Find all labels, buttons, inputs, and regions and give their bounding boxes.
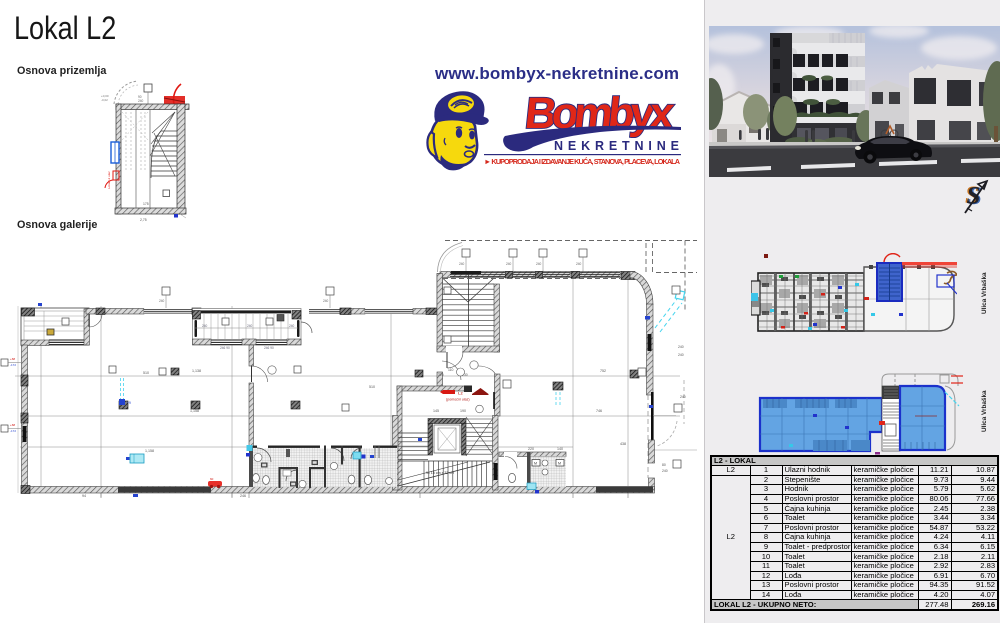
svg-text:60: 60 bbox=[210, 477, 214, 481]
svg-text:240: 240 bbox=[506, 262, 512, 266]
svg-text:M: M bbox=[534, 462, 537, 466]
svg-text:240: 240 bbox=[459, 262, 465, 266]
svg-text:752: 752 bbox=[600, 369, 606, 373]
svg-text:240: 240 bbox=[576, 262, 582, 266]
svg-text:www.bombyx-nekretnine.com: www.bombyx-nekretnine.com bbox=[434, 64, 679, 83]
svg-text:240: 240 bbox=[662, 469, 668, 473]
svg-text:438: 438 bbox=[620, 442, 626, 446]
svg-text:190: 190 bbox=[460, 409, 466, 413]
svg-text:240: 240 bbox=[678, 353, 684, 357]
svg-text:246: 246 bbox=[240, 494, 246, 498]
svg-text:240: 240 bbox=[323, 299, 329, 303]
svg-text:+9: +9 bbox=[127, 401, 131, 405]
svg-text:240: 240 bbox=[289, 324, 295, 328]
svg-text:240: 240 bbox=[247, 324, 253, 328]
svg-text:220: 220 bbox=[528, 447, 534, 451]
svg-text:+68: +68 bbox=[10, 423, 15, 427]
svg-text:-0,02: -0,02 bbox=[101, 98, 108, 102]
svg-text:140: 140 bbox=[557, 447, 563, 451]
svg-text:145: 145 bbox=[433, 409, 439, 413]
svg-text:► KUPOPRODAJA I IZDAVANJE KUĆA: ► KUPOPRODAJA I IZDAVANJE KUĆA, STANOVA,… bbox=[484, 157, 681, 166]
svg-text:175: 175 bbox=[143, 202, 149, 206]
svg-text:(pomoćni ulaz): (pomoćni ulaz) bbox=[446, 398, 470, 402]
svg-text:-172: -172 bbox=[10, 429, 16, 433]
svg-text:246 90: 246 90 bbox=[264, 346, 274, 350]
svg-text:510: 510 bbox=[143, 371, 149, 375]
svg-text:94: 94 bbox=[82, 494, 86, 498]
svg-text:510: 510 bbox=[369, 385, 375, 389]
svg-text:1,138: 1,138 bbox=[192, 369, 201, 373]
svg-text:240: 240 bbox=[678, 345, 684, 349]
svg-text:240: 240 bbox=[536, 262, 542, 266]
svg-text:2,75: 2,75 bbox=[140, 218, 147, 222]
svg-text:1,158: 1,158 bbox=[190, 409, 199, 413]
svg-text:746: 746 bbox=[596, 409, 602, 413]
svg-text:1,158: 1,158 bbox=[145, 449, 154, 453]
svg-text:9x 15 cm x 32 cm: 9x 15 cm x 32 cm bbox=[426, 471, 454, 475]
svg-text:240: 240 bbox=[202, 324, 208, 328]
svg-text:80: 80 bbox=[662, 463, 666, 467]
svg-text:220: 220 bbox=[438, 373, 444, 377]
svg-text:240: 240 bbox=[159, 299, 165, 303]
svg-text:+68: +68 bbox=[10, 357, 15, 361]
svg-text:110: 110 bbox=[448, 368, 454, 372]
svg-text:-172: -172 bbox=[10, 363, 16, 367]
svg-text:M: M bbox=[558, 462, 561, 466]
svg-text:246 90: 246 90 bbox=[220, 346, 230, 350]
svg-text:Lokal L2 ulaz: Lokal L2 ulaz bbox=[107, 171, 111, 189]
svg-text:240: 240 bbox=[138, 99, 144, 103]
svg-text:L2: L2 bbox=[458, 391, 463, 396]
svg-text:240: 240 bbox=[680, 395, 686, 399]
svg-text:S: S bbox=[967, 183, 981, 210]
svg-text:NEKRETNINE: NEKRETNINE bbox=[554, 139, 679, 153]
